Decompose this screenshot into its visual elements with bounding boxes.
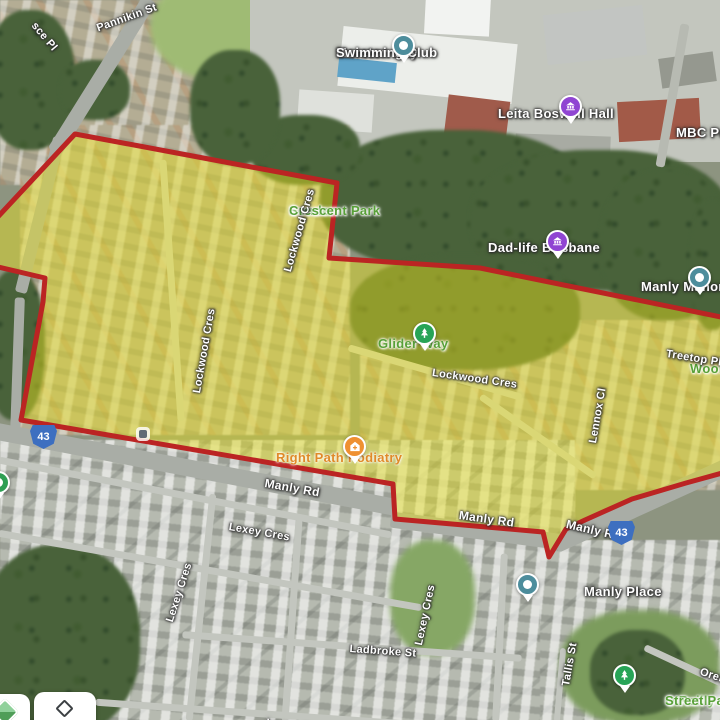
park-pin-oreilly[interactable] — [613, 664, 636, 687]
building-roof — [543, 5, 648, 65]
building-roof — [424, 0, 491, 37]
pin-dot-icon — [695, 273, 704, 282]
layers-button[interactable] — [0, 694, 30, 720]
forest-patch — [350, 255, 580, 370]
forest-patch — [690, 200, 720, 330]
poi-pin-manly-place[interactable] — [516, 573, 539, 596]
biz-pin-podiatry[interactable] — [343, 435, 366, 458]
poi-pin-hall[interactable] — [559, 95, 582, 118]
poi-pin-swimming-club[interactable] — [392, 34, 415, 57]
poi-pin-dad-life[interactable] — [546, 230, 569, 253]
health-house-icon — [348, 440, 362, 454]
forest-patch — [190, 50, 280, 165]
bus-stop-icon[interactable] — [136, 427, 150, 441]
poi-pin-manly-manor[interactable] — [688, 266, 711, 289]
diamond-icon — [55, 699, 73, 717]
pin-dot-icon — [523, 580, 532, 589]
navigate-button[interactable] — [34, 692, 96, 720]
satellite-map[interactable]: Moreton BaySwimming Club Leita Boswell H… — [0, 0, 720, 720]
tree-icon — [418, 327, 431, 340]
event-icon — [551, 235, 564, 248]
bus-stop-glyph — [139, 430, 147, 438]
map-layers-icon — [0, 698, 19, 720]
pin-dot-icon — [0, 478, 3, 487]
hall-icon — [564, 100, 577, 113]
park-pin-glider-way[interactable] — [413, 322, 436, 345]
tree-icon — [618, 669, 631, 682]
pin-dot-icon — [399, 41, 408, 50]
